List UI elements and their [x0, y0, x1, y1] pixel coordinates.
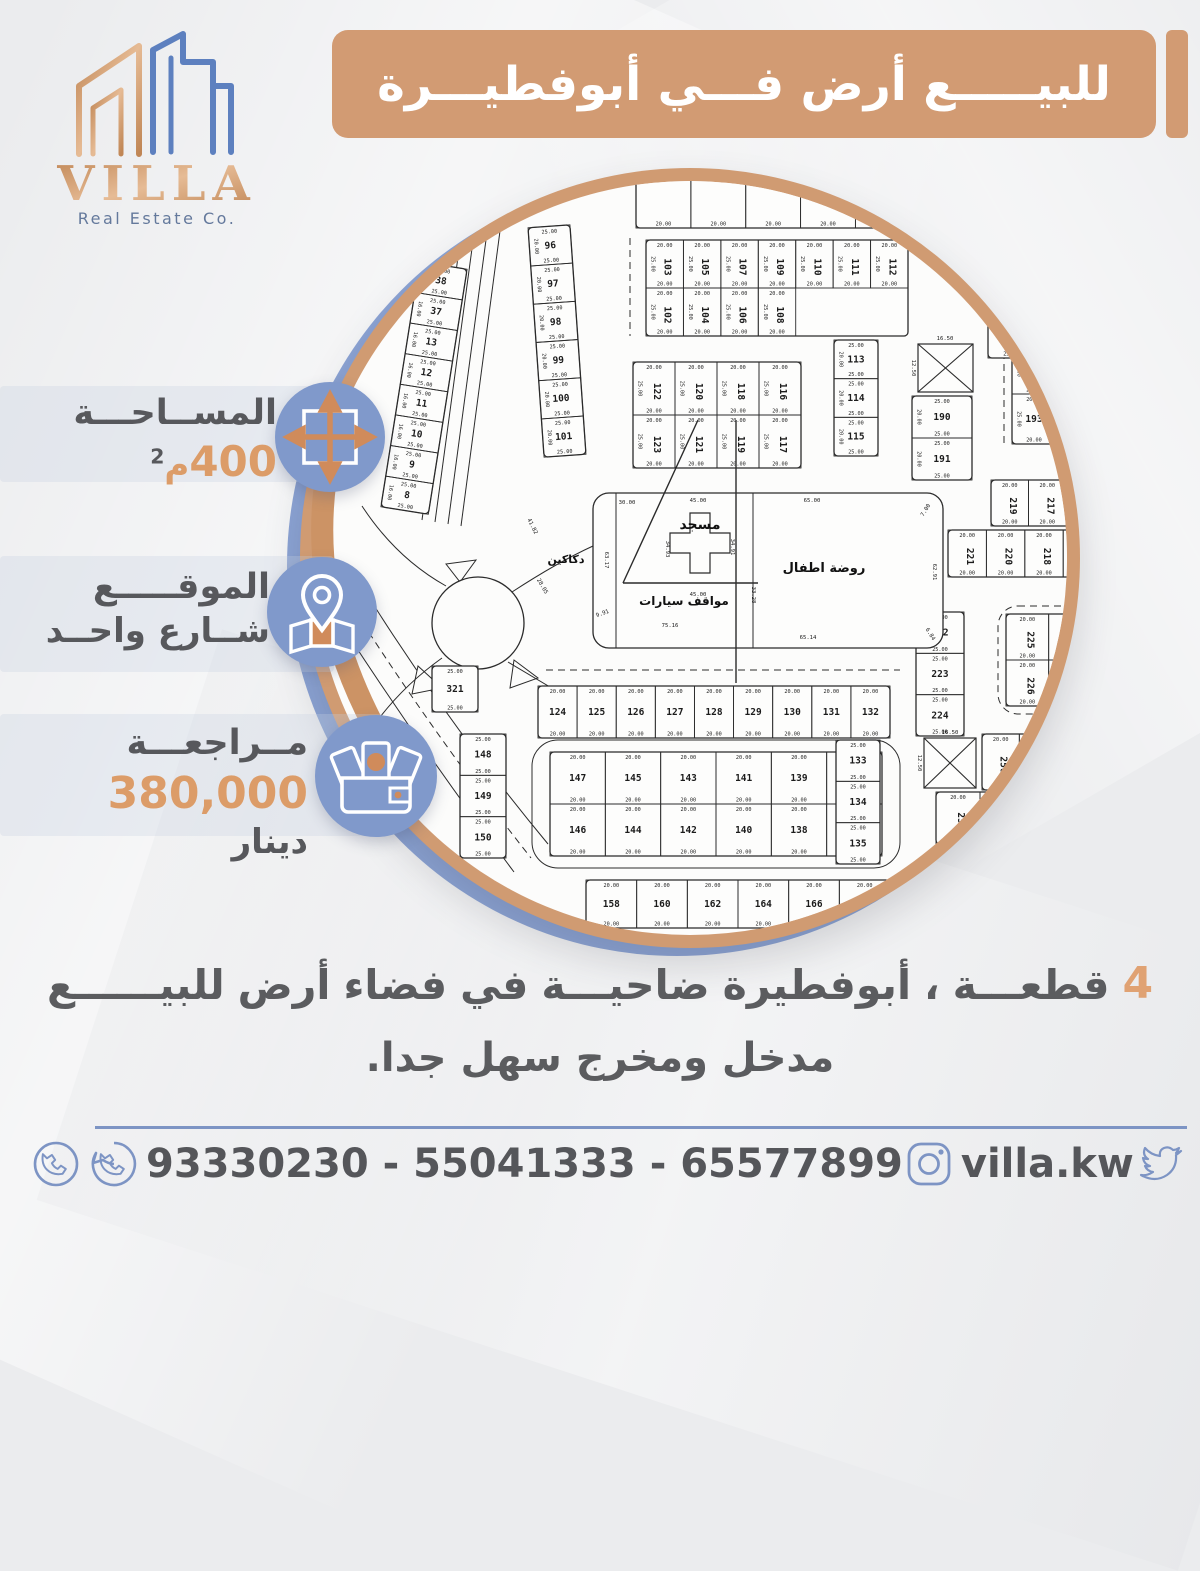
svg-text:25.00: 25.00: [848, 420, 864, 426]
price-label: مــراجعـــة: [30, 722, 308, 766]
price-info: مــراجعـــة 380,000 دينار: [30, 722, 308, 863]
svg-text:219: 219: [1007, 497, 1018, 514]
svg-text:20.00: 20.00: [540, 353, 547, 369]
svg-text:20.00: 20.00: [985, 222, 1001, 228]
svg-text:20.00: 20.00: [628, 732, 644, 738]
svg-text:20.00: 20.00: [1039, 483, 1055, 489]
svg-text:20.00: 20.00: [589, 732, 605, 738]
description-line2: مدخل ومخرج سهل جدا.: [55, 1035, 1145, 1081]
svg-text:25.00: 25.00: [763, 381, 769, 397]
svg-text:99: 99: [552, 355, 564, 367]
svg-text:25.00: 25.00: [837, 256, 843, 272]
svg-text:25.00: 25.00: [475, 737, 491, 743]
svg-text:149: 149: [474, 791, 491, 802]
svg-text:16.50: 16.50: [942, 730, 959, 736]
svg-text:20.00: 20.00: [916, 451, 922, 467]
svg-text:25.00: 25.00: [475, 778, 491, 784]
expand-arrows-icon: [275, 382, 385, 492]
svg-text:20.00: 20.00: [820, 222, 836, 228]
svg-text:20.00: 20.00: [838, 390, 844, 406]
svg-text:25.00: 25.00: [447, 706, 463, 712]
svg-text:248: 248: [1035, 756, 1046, 773]
svg-text:25.00: 25.00: [848, 343, 864, 349]
svg-text:25.00: 25.00: [475, 820, 491, 826]
svg-text:20.00: 20.00: [657, 291, 673, 297]
svg-text:63.17: 63.17: [603, 552, 609, 569]
svg-text:25.00: 25.00: [650, 304, 656, 320]
svg-text:190: 190: [933, 412, 950, 423]
location-label: الموقـــــع: [40, 566, 270, 610]
svg-text:20.00: 20.00: [625, 798, 641, 804]
svg-text:133: 133: [849, 756, 866, 767]
svg-text:20.00: 20.00: [694, 282, 710, 288]
svg-text:131: 131: [823, 707, 840, 718]
svg-text:114: 114: [847, 393, 864, 404]
instagram-icon: [903, 1138, 955, 1190]
svg-text:101: 101: [555, 431, 573, 443]
svg-text:20.00: 20.00: [681, 807, 697, 813]
svg-text:20.00: 20.00: [688, 409, 704, 415]
svg-text:20.00: 20.00: [705, 922, 721, 928]
svg-text:20.00: 20.00: [950, 795, 966, 801]
svg-text:160: 160: [653, 899, 670, 910]
svg-text:25.00: 25.00: [554, 410, 570, 417]
svg-text:20.00: 20.00: [916, 409, 922, 425]
svg-text:20.00: 20.00: [838, 429, 844, 445]
svg-text:25.00: 25.00: [850, 743, 866, 749]
footer: 93330230 - 55041333 - 65577899 villa.kw …: [30, 1134, 1190, 1194]
svg-text:102: 102: [662, 306, 673, 323]
svg-text:98: 98: [550, 316, 562, 328]
price-value: 380,000 دينار: [30, 766, 308, 864]
svg-text:20.00: 20.00: [863, 732, 879, 738]
svg-text:142: 142: [680, 825, 697, 836]
svg-text:20.00: 20.00: [769, 291, 785, 297]
svg-text:25.00: 25.00: [1060, 411, 1066, 427]
svg-text:20.00: 20.00: [625, 850, 641, 856]
svg-text:25.00: 25.00: [934, 474, 950, 480]
svg-text:20.00: 20.00: [646, 418, 662, 424]
svg-text:108: 108: [774, 306, 785, 323]
svg-text:20.00: 20.00: [1020, 663, 1036, 669]
company-logo: VILLA Real Estate Co.: [35, 22, 315, 232]
svg-text:251: 251: [999, 812, 1010, 829]
svg-text:20.00: 20.00: [772, 418, 788, 424]
svg-text:20.00: 20.00: [657, 243, 673, 249]
svg-text:115: 115: [847, 432, 864, 443]
svg-text:103: 103: [662, 258, 673, 275]
description-word: ضاحيـــة: [541, 961, 709, 1009]
svg-text:25.00: 25.00: [850, 858, 866, 864]
svg-text:217: 217: [1044, 497, 1055, 514]
svg-text:104: 104: [699, 306, 710, 323]
svg-text:20.00: 20.00: [589, 689, 605, 695]
svg-text:20.00: 20.00: [681, 755, 697, 761]
svg-text:225: 225: [1024, 631, 1035, 648]
svg-text:128: 128: [705, 707, 722, 718]
svg-text:20.00: 20.00: [688, 462, 704, 468]
svg-text:117: 117: [777, 436, 788, 453]
svg-text:132: 132: [862, 707, 879, 718]
svg-text:25.00: 25.00: [724, 304, 730, 320]
svg-text:20.00: 20.00: [993, 737, 1009, 743]
svg-text:141: 141: [735, 773, 752, 784]
location-info: الموقـــــع شــارع واحــد: [40, 566, 270, 652]
svg-text:110: 110: [811, 258, 822, 275]
svg-text:106: 106: [737, 306, 748, 323]
svg-text:20.00: 20.00: [646, 365, 662, 371]
svg-text:122: 122: [651, 383, 662, 400]
svg-text:20.00: 20.00: [570, 850, 586, 856]
svg-text:25.00: 25.00: [848, 382, 864, 388]
svg-text:20.00: 20.00: [730, 409, 746, 415]
svg-text:25.00: 25.00: [932, 647, 948, 653]
svg-text:25.00: 25.00: [850, 816, 866, 822]
svg-text:20.00: 20.00: [838, 352, 844, 368]
svg-text:20.00: 20.00: [706, 732, 722, 738]
svg-text:127: 127: [666, 707, 683, 718]
svg-text:191: 191: [933, 454, 950, 465]
svg-text:124: 124: [549, 707, 566, 718]
svg-text:96: 96: [544, 240, 556, 252]
svg-text:112: 112: [886, 258, 897, 275]
money-wallet-icon: [315, 715, 437, 837]
svg-text:20.00: 20.00: [730, 418, 746, 424]
svg-text:25.00: 25.00: [932, 688, 948, 694]
svg-text:20.00: 20.00: [667, 689, 683, 695]
svg-text:25.00: 25.00: [1003, 319, 1019, 325]
svg-text:218: 218: [1041, 548, 1052, 565]
svg-text:20.00: 20.00: [765, 222, 781, 228]
svg-text:20.00: 20.00: [730, 462, 746, 468]
twitter-icon: [1134, 1138, 1188, 1190]
svg-text:97: 97: [547, 278, 559, 290]
svg-text:25.00: 25.00: [546, 296, 562, 303]
svg-text:37: 37: [430, 306, 443, 319]
location-icon: [267, 557, 377, 667]
svg-text:20.00: 20.00: [625, 755, 641, 761]
svg-text:20.00: 20.00: [535, 277, 542, 293]
svg-text:25.00: 25.00: [475, 810, 491, 816]
svg-text:113: 113: [847, 354, 864, 365]
svg-text:41.82: 41.82: [526, 518, 539, 536]
svg-text:20.00: 20.00: [732, 282, 748, 288]
svg-text:20.00: 20.00: [705, 883, 721, 889]
price-icon: [315, 715, 437, 837]
svg-text:139: 139: [790, 773, 807, 784]
svg-text:20.00: 20.00: [756, 922, 772, 928]
svg-text:20.00: 20.00: [736, 850, 752, 856]
svg-text:20.00: 20.00: [710, 222, 726, 228]
svg-text:126: 126: [627, 707, 644, 718]
svg-text:20.00: 20.00: [625, 807, 641, 813]
svg-text:20.00: 20.00: [550, 689, 566, 695]
svg-text:20.00: 20.00: [784, 689, 800, 695]
svg-text:189: 189: [1002, 290, 1019, 301]
svg-text:20.00: 20.00: [994, 838, 1010, 844]
description-word: أرض: [238, 961, 331, 1009]
svg-text:20.00: 20.00: [688, 365, 704, 371]
svg-text:20.00: 20.00: [732, 243, 748, 249]
svg-text:25.00: 25.00: [637, 381, 643, 397]
svg-text:25.00: 25.00: [1016, 411, 1022, 427]
svg-text:116: 116: [777, 383, 788, 400]
svg-text:226: 226: [1024, 677, 1035, 694]
instagram-handle[interactable]: villa.kw: [961, 1141, 1134, 1187]
svg-text:20.00: 20.00: [930, 222, 946, 228]
svg-text:25.00: 25.00: [932, 698, 948, 704]
svg-text:20.00: 20.00: [807, 243, 823, 249]
svg-text:20.00: 20.00: [730, 365, 746, 371]
svg-text:321: 321: [446, 684, 463, 695]
svg-text:25.00: 25.00: [762, 256, 768, 272]
svg-text:34.91: 34.91: [729, 539, 735, 556]
svg-text:20.00: 20.00: [543, 391, 550, 407]
svg-text:20.00: 20.00: [656, 222, 672, 228]
svg-text:20.00: 20.00: [538, 315, 545, 331]
map-pin-icon: [267, 557, 377, 667]
svg-text:دكاكين: دكاكين: [548, 553, 585, 566]
svg-text:20.00: 20.00: [646, 409, 662, 415]
svg-text:25.00: 25.00: [848, 372, 864, 378]
svg-text:20.00: 20.00: [706, 689, 722, 695]
svg-text:146: 146: [569, 825, 586, 836]
svg-text:45.00: 45.00: [690, 498, 707, 504]
svg-text:166: 166: [805, 899, 822, 910]
svg-text:25.00: 25.00: [679, 434, 685, 450]
svg-text:20.00: 20.00: [570, 798, 586, 804]
svg-text:مواقف سيارات: مواقف سيارات: [639, 594, 729, 609]
svg-text:20.00: 20.00: [791, 850, 807, 856]
svg-text:25.00: 25.00: [721, 381, 727, 397]
svg-text:25.00: 25.00: [544, 267, 560, 274]
svg-text:20.00: 20.00: [769, 282, 785, 288]
svg-text:121: 121: [693, 436, 704, 453]
svg-text:145: 145: [624, 773, 641, 784]
svg-text:20.00: 20.00: [1020, 654, 1036, 660]
svg-text:روضة اطفال: روضة اطفال: [783, 561, 866, 576]
svg-text:147: 147: [569, 773, 586, 784]
area-info: المســاحـــة 400م2: [55, 392, 277, 488]
svg-text:223: 223: [931, 669, 948, 680]
svg-text:105: 105: [699, 258, 710, 275]
svg-text:135: 135: [849, 838, 866, 849]
svg-text:20.00: 20.00: [532, 238, 539, 254]
svg-text:25.00: 25.00: [850, 775, 866, 781]
svg-text:25.00: 25.00: [850, 784, 866, 790]
svg-text:25.00: 25.00: [850, 826, 866, 832]
svg-text:144: 144: [624, 825, 641, 836]
svg-text:20.00: 20.00: [769, 330, 785, 336]
svg-text:20.00: 20.00: [824, 689, 840, 695]
svg-text:20.00: 20.00: [791, 807, 807, 813]
svg-text:20.00: 20.00: [1030, 784, 1046, 790]
area-icon: [275, 382, 385, 492]
svg-text:20.00: 20.00: [844, 282, 860, 288]
svg-text:20.00: 20.00: [772, 365, 788, 371]
location-value: شــارع واحــد: [40, 610, 270, 653]
svg-text:20.00: 20.00: [1039, 520, 1055, 526]
svg-text:30.00: 30.00: [619, 500, 636, 506]
svg-text:75.16: 75.16: [662, 623, 679, 629]
svg-text:25.00: 25.00: [1003, 310, 1019, 316]
description-word: في: [460, 961, 528, 1009]
svg-text:20.00: 20.00: [857, 922, 873, 928]
svg-text:10: 10: [410, 428, 423, 441]
svg-text:20.00: 20.00: [772, 462, 788, 468]
area-label: المســاحـــة: [55, 392, 277, 436]
svg-text:20.00: 20.00: [844, 243, 860, 249]
phone-numbers[interactable]: 93330230 - 55041333 - 65577899: [146, 1141, 903, 1187]
svg-text:20.00: 20.00: [998, 533, 1014, 539]
svg-text:25.00: 25.00: [687, 304, 693, 320]
svg-text:20.00: 20.00: [857, 883, 873, 889]
svg-text:20.00: 20.00: [646, 462, 662, 468]
banner-accent-bar: [1166, 30, 1188, 138]
svg-text:20.00: 20.00: [694, 243, 710, 249]
svg-text:20.00: 20.00: [998, 571, 1014, 577]
phone-group[interactable]: 93330230 - 55041333 - 65577899: [30, 1138, 903, 1190]
svg-text:20.00: 20.00: [806, 883, 822, 889]
svg-text:20.00: 20.00: [807, 282, 823, 288]
svg-text:20.00: 20.00: [604, 883, 620, 889]
svg-text:25.00: 25.00: [799, 256, 805, 272]
svg-text:20.00: 20.00: [772, 409, 788, 415]
svg-text:20.00: 20.00: [769, 243, 785, 249]
svg-text:20.00: 20.00: [654, 883, 670, 889]
svg-text:مسجد: مسجد: [679, 517, 720, 533]
title-banner: للبيـــــع أرض فـــي أبوفطيـــرة: [332, 30, 1156, 138]
logo-subtitle: Real Estate Co.: [78, 209, 237, 228]
svg-text:134: 134: [849, 797, 866, 808]
svg-text:25.00: 25.00: [934, 441, 950, 447]
svg-text:25.00: 25.00: [934, 399, 950, 405]
svg-text:65.14: 65.14: [800, 635, 817, 641]
svg-text:20.00: 20.00: [657, 330, 673, 336]
svg-text:33.28: 33.28: [750, 587, 756, 604]
svg-text:20.00: 20.00: [550, 732, 566, 738]
phone-icon: [30, 1138, 82, 1190]
svg-text:25.00: 25.00: [679, 381, 685, 397]
svg-text:220: 220: [1003, 548, 1014, 565]
instagram-group[interactable]: villa.kw: [903, 1138, 1134, 1190]
description: للبيــــــعأرضفضاءفيضاحيـــةأبوفطيرة،قطع…: [55, 958, 1145, 1081]
svg-text:20.00: 20.00: [654, 922, 670, 928]
svg-text:12: 12: [420, 367, 433, 380]
svg-text:20.00: 20.00: [681, 850, 697, 856]
svg-text:20.00: 20.00: [736, 798, 752, 804]
svg-text:111: 111: [849, 258, 860, 275]
svg-text:20.00: 20.00: [570, 755, 586, 761]
description-word: ،: [924, 961, 940, 1009]
svg-text:20.00: 20.00: [694, 330, 710, 336]
svg-text:130: 130: [784, 707, 801, 718]
svg-text:123: 123: [651, 436, 662, 453]
svg-text:62.91: 62.91: [931, 564, 937, 581]
svg-text:25.00: 25.00: [637, 434, 643, 450]
svg-text:20.00: 20.00: [959, 571, 975, 577]
svg-text:20.00: 20.00: [1020, 700, 1036, 706]
svg-text:20.00: 20.00: [959, 533, 975, 539]
svg-text:20.00: 20.00: [546, 430, 553, 446]
svg-text:107: 107: [737, 258, 748, 275]
svg-text:25.00: 25.00: [721, 434, 727, 450]
svg-text:25.00: 25.00: [475, 769, 491, 775]
svg-text:12.50: 12.50: [916, 755, 922, 772]
svg-text:20.00: 20.00: [1002, 520, 1018, 526]
svg-text:164: 164: [755, 899, 772, 910]
description-line1: للبيــــــعأرضفضاءفيضاحيـــةأبوفطيرة،قطع…: [55, 958, 1145, 1009]
svg-text:25.00: 25.00: [762, 304, 768, 320]
svg-text:20.00: 20.00: [881, 243, 897, 249]
svg-text:20.00: 20.00: [791, 755, 807, 761]
svg-text:20.00: 20.00: [681, 798, 697, 804]
svg-text:138: 138: [790, 825, 807, 836]
svg-text:20.00: 20.00: [657, 282, 673, 288]
svg-text:20.00: 20.00: [745, 732, 761, 738]
svg-text:25.00: 25.00: [447, 669, 463, 675]
svg-text:143: 143: [680, 773, 697, 784]
svg-text:28.05: 28.05: [535, 578, 549, 596]
svg-text:20.00: 20.00: [1036, 571, 1052, 577]
svg-text:100: 100: [552, 393, 570, 405]
social-group[interactable]: villa_kw: [1134, 1138, 1200, 1190]
svg-text:20.00: 20.00: [1026, 347, 1042, 353]
svg-text:150: 150: [474, 832, 491, 843]
svg-text:25.00: 25.00: [549, 343, 565, 350]
svg-text:25.00: 25.00: [934, 432, 950, 438]
svg-text:20.00: 20.00: [824, 732, 840, 738]
snapchat-icon: [1194, 1138, 1200, 1190]
footer-divider: [95, 1126, 1187, 1129]
svg-text:20.00: 20.00: [1020, 617, 1036, 623]
svg-text:25.00: 25.00: [687, 256, 693, 272]
svg-text:25.00: 25.00: [932, 656, 948, 662]
description-word: فضاء: [343, 961, 447, 1009]
svg-text:25.00: 25.00: [1060, 361, 1066, 377]
block-number: 4: [1122, 958, 1153, 1009]
svg-text:65.00: 65.00: [804, 498, 821, 504]
svg-text:158: 158: [603, 899, 620, 910]
svg-text:125: 125: [588, 707, 605, 718]
svg-text:34.93: 34.93: [664, 541, 670, 558]
svg-text:25.00: 25.00: [547, 305, 563, 312]
svg-text:25.00: 25.00: [848, 450, 864, 456]
svg-text:221: 221: [964, 548, 975, 565]
real-estate-ad: { "colors":{"tan":"#d29b73","blue":"#809…: [0, 0, 1200, 1200]
svg-text:20.00: 20.00: [732, 291, 748, 297]
svg-text:20.00: 20.00: [570, 807, 586, 813]
svg-text:12.50: 12.50: [910, 360, 916, 377]
svg-text:20.00: 20.00: [756, 883, 772, 889]
svg-text:20.00: 20.00: [628, 689, 644, 695]
svg-text:20.00: 20.00: [694, 291, 710, 297]
svg-text:20.00: 20.00: [863, 689, 879, 695]
svg-text:20.00: 20.00: [745, 689, 761, 695]
svg-text:20.00: 20.00: [736, 755, 752, 761]
svg-text:20.00: 20.00: [881, 282, 897, 288]
svg-text:224: 224: [931, 710, 948, 721]
svg-text:20.00: 20.00: [1002, 483, 1018, 489]
svg-text:20.00: 20.00: [1026, 438, 1042, 444]
svg-text:25.00: 25.00: [555, 420, 571, 427]
svg-text:20.00: 20.00: [1062, 700, 1067, 706]
svg-text:25.00: 25.00: [551, 372, 567, 379]
svg-text:20.00: 20.00: [784, 732, 800, 738]
svg-text:11: 11: [415, 397, 428, 410]
svg-text:25.00: 25.00: [763, 434, 769, 450]
svg-text:25.00: 25.00: [541, 229, 557, 236]
